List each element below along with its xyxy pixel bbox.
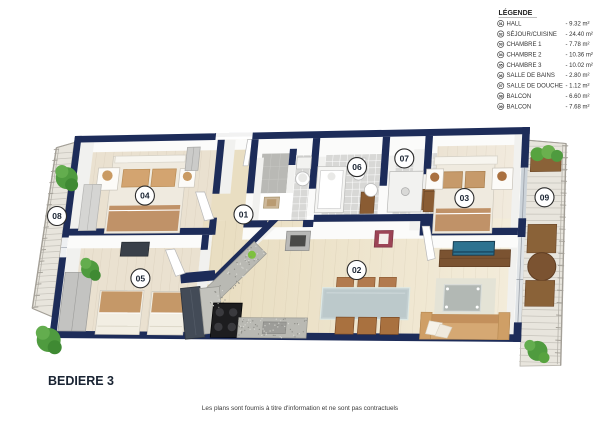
svg-text:SÉJOUR/CUISINE: SÉJOUR/CUISINE (507, 31, 557, 38)
svg-text:- 7.78 m²: - 7.78 m² (566, 42, 590, 48)
svg-text:- 24.40 m²: - 24.40 m² (566, 32, 593, 38)
svg-text:SALLE DE DOUCHE: SALLE DE DOUCHE (507, 84, 563, 90)
svg-text:07: 07 (400, 153, 410, 163)
svg-text:01: 01 (499, 22, 503, 26)
svg-text:06: 06 (499, 74, 503, 78)
svg-text:- 9.32 m²: - 9.32 m² (566, 22, 590, 28)
svg-text:05: 05 (136, 273, 146, 283)
svg-text:01: 01 (239, 209, 249, 219)
svg-text:- 10.36 m²: - 10.36 m² (566, 53, 593, 59)
svg-text:- 7.68 m²: - 7.68 m² (566, 104, 590, 110)
svg-text:- 2.80 m²: - 2.80 m² (566, 73, 590, 79)
svg-text:03: 03 (499, 43, 503, 47)
svg-text:02: 02 (352, 265, 362, 275)
svg-text:BEDIERE 3: BEDIERE 3 (48, 374, 114, 388)
svg-text:BALCON: BALCON (507, 94, 532, 100)
svg-text:04: 04 (140, 191, 150, 201)
svg-text:- 6.60 m²: - 6.60 m² (566, 94, 590, 100)
svg-text:- 10.02 m²: - 10.02 m² (566, 63, 593, 69)
svg-text:02: 02 (499, 32, 503, 36)
svg-text:SALLE DE BAINS: SALLE DE BAINS (507, 73, 555, 79)
svg-text:Les plans sont fournis à titre: Les plans sont fournis à titre d'informa… (202, 405, 398, 412)
svg-text:LÉGENDE: LÉGENDE (499, 8, 533, 17)
svg-text:08: 08 (499, 94, 503, 98)
svg-text:HALL: HALL (507, 22, 523, 28)
svg-text:06: 06 (352, 162, 362, 172)
svg-text:- 1.12 m²: - 1.12 m² (566, 84, 590, 90)
svg-text:CHAMBRE 2: CHAMBRE 2 (507, 53, 543, 59)
svg-text:08: 08 (52, 211, 62, 221)
svg-text:CHAMBRE 1: CHAMBRE 1 (507, 42, 543, 48)
svg-text:07: 07 (499, 84, 503, 88)
svg-text:03: 03 (460, 193, 470, 203)
svg-text:CHAMBRE 3: CHAMBRE 3 (507, 63, 543, 69)
svg-text:09: 09 (540, 192, 550, 202)
svg-text:BALCON: BALCON (507, 104, 532, 110)
svg-text:04: 04 (499, 53, 503, 57)
svg-text:05: 05 (499, 63, 503, 67)
svg-text:09: 09 (499, 105, 503, 109)
